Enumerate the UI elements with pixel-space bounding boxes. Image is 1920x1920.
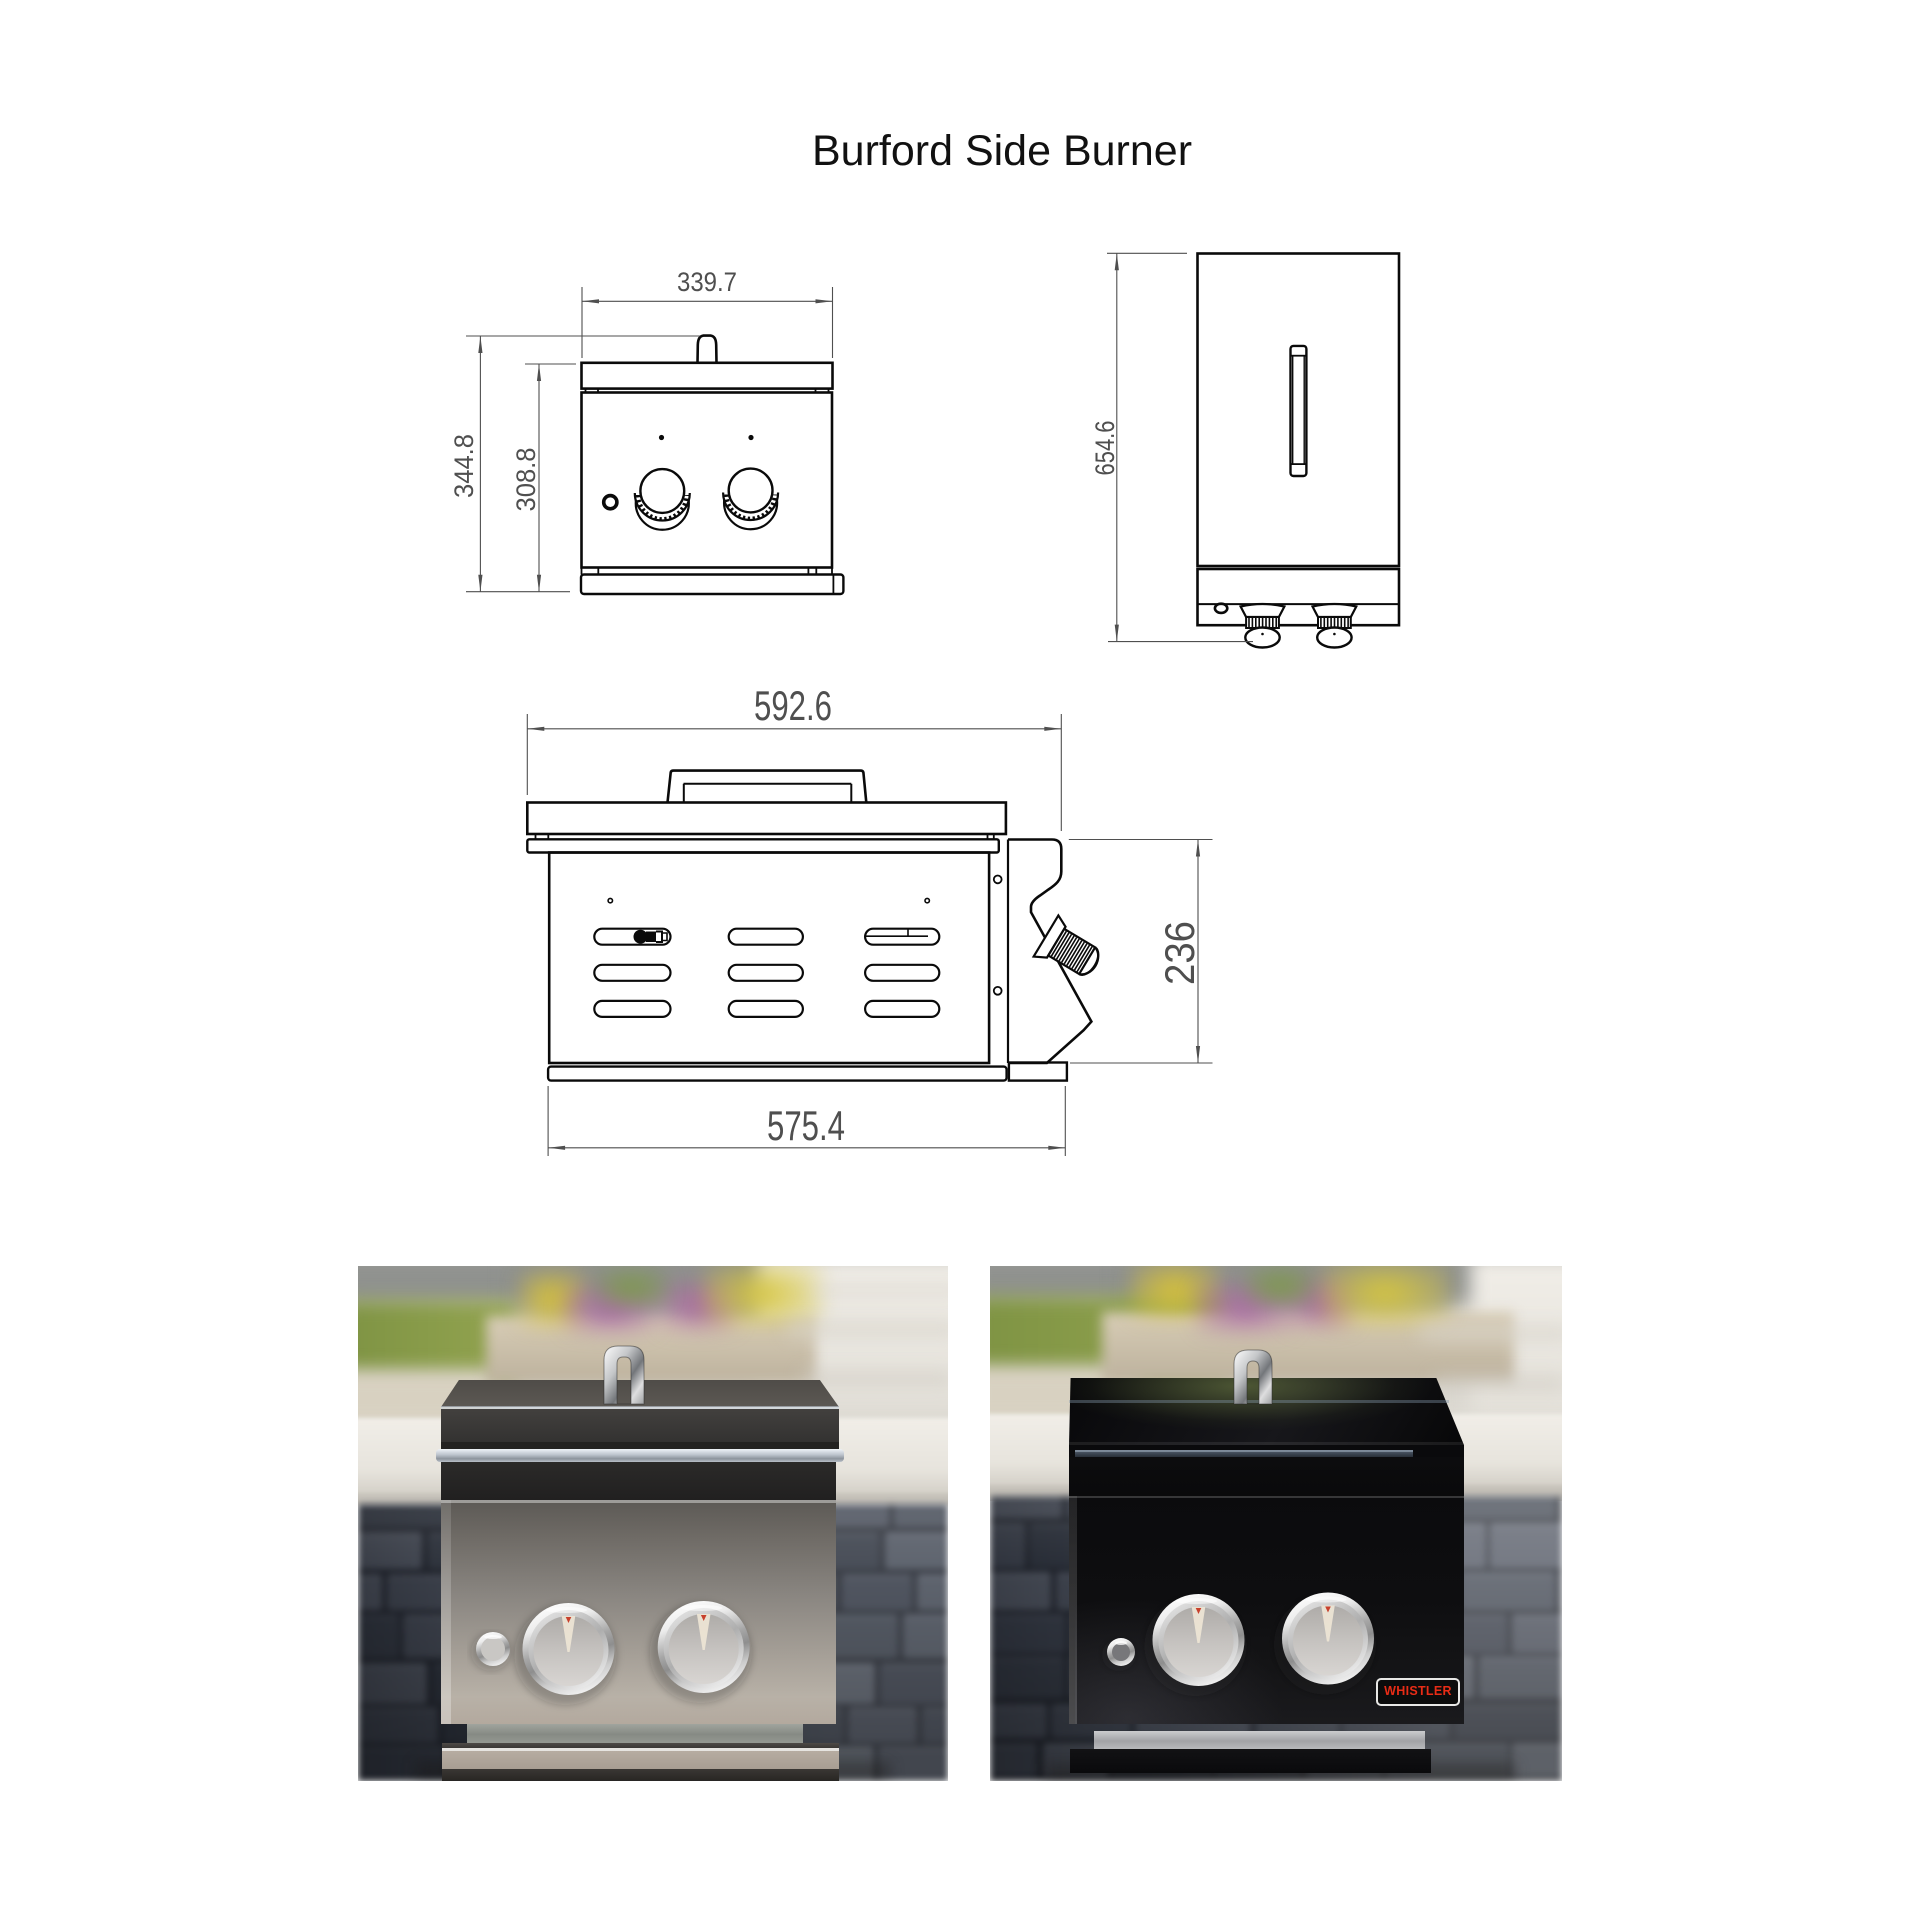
svg-text:654.6: 654.6 bbox=[1090, 421, 1120, 476]
svg-text:575.4: 575.4 bbox=[767, 1102, 845, 1149]
svg-text:308.8: 308.8 bbox=[511, 448, 541, 512]
svg-text:344.8: 344.8 bbox=[449, 434, 479, 498]
svg-text:236: 236 bbox=[1156, 921, 1203, 985]
svg-text:339.7: 339.7 bbox=[677, 267, 737, 297]
svg-text:592.6: 592.6 bbox=[754, 682, 832, 729]
